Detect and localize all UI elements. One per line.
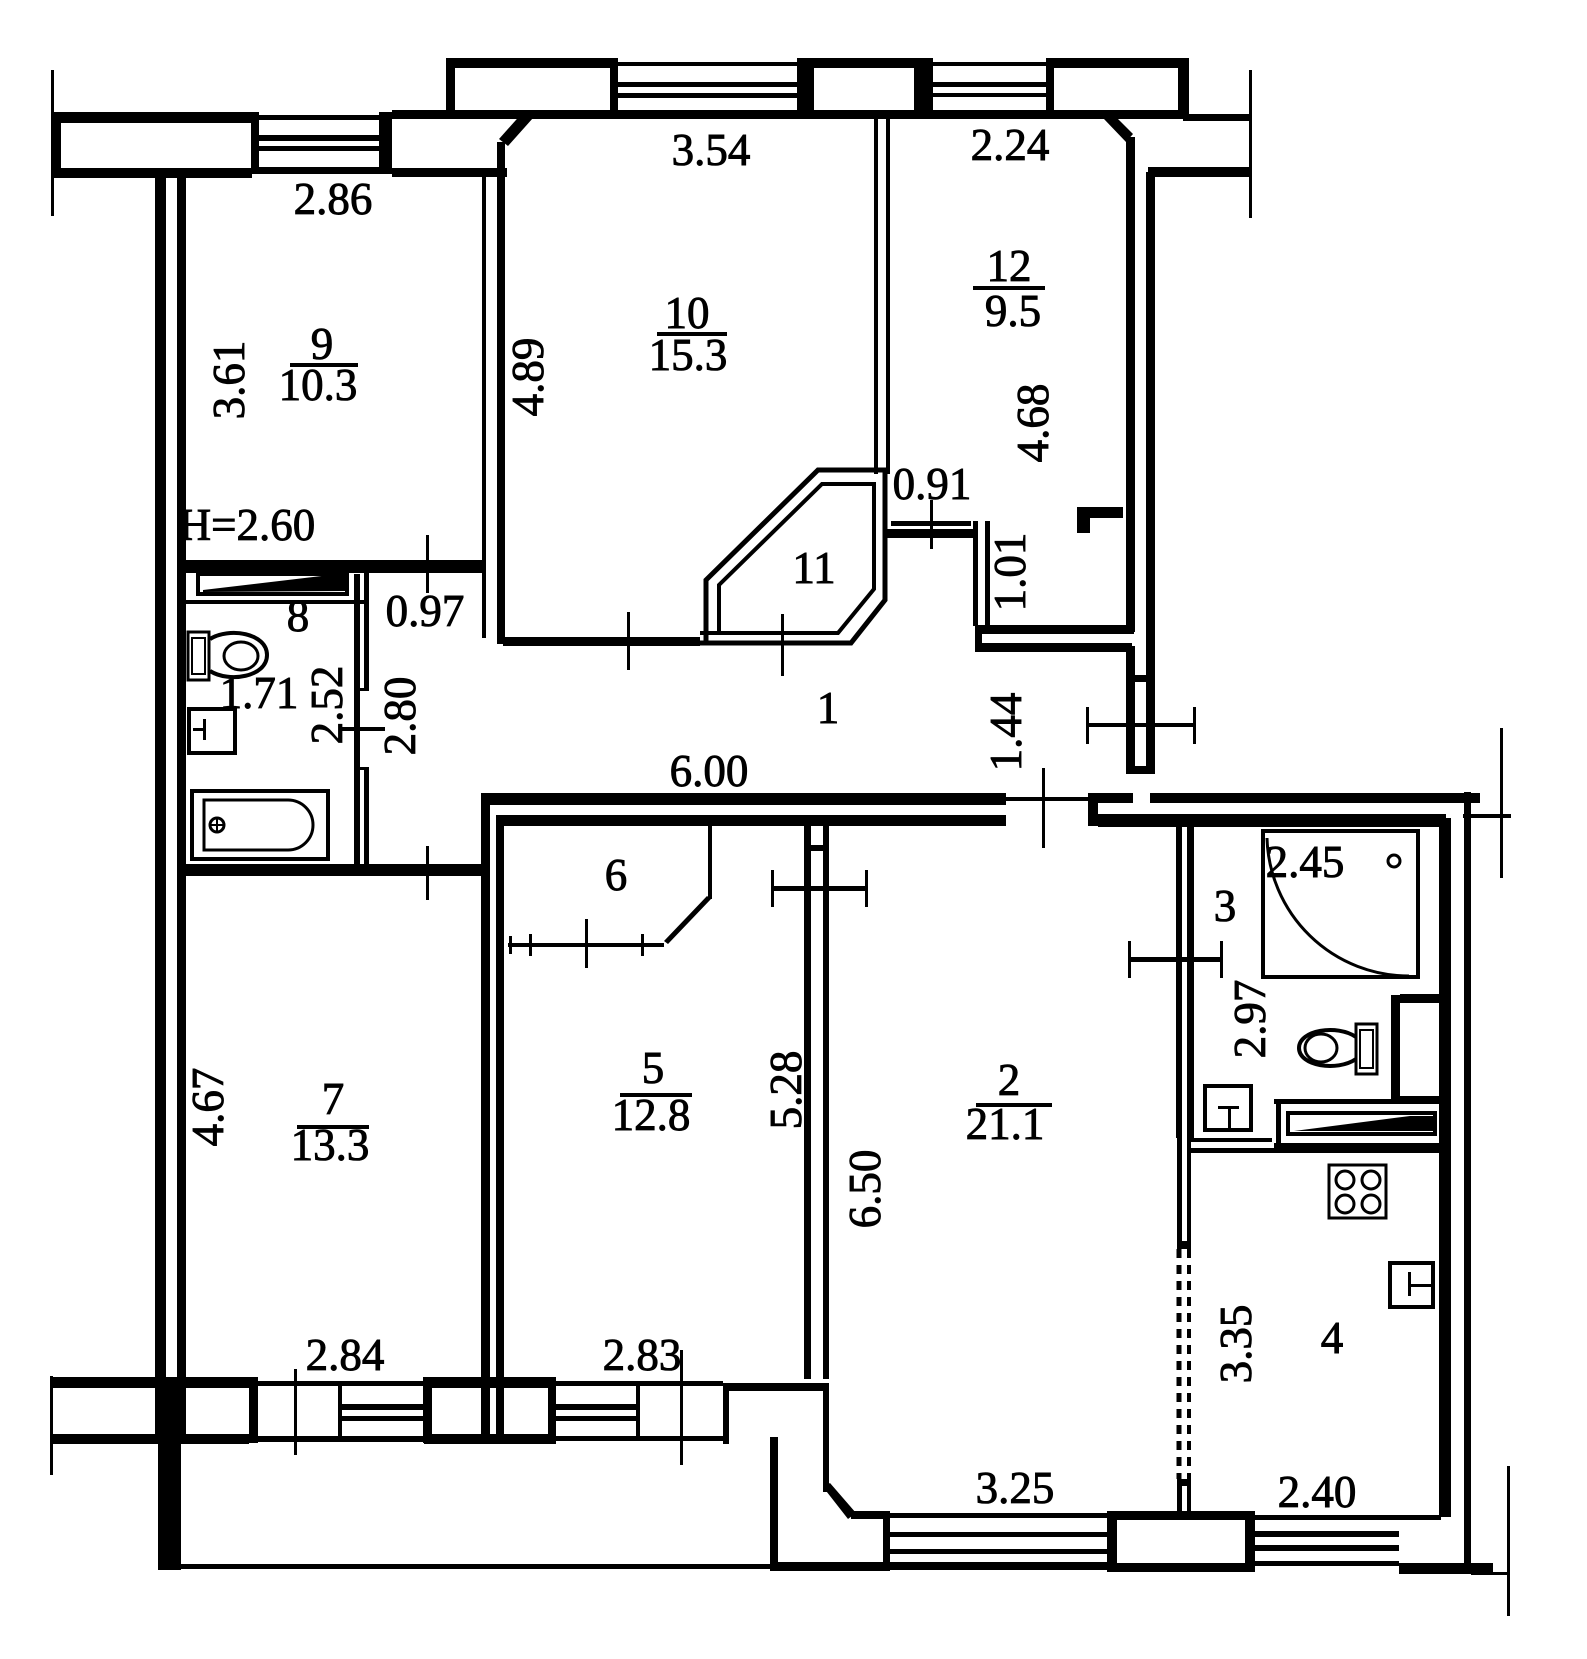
svg-text:3.25: 3.25 (976, 1463, 1055, 1513)
svg-text:4.68: 4.68 (1008, 384, 1058, 463)
svg-text:2.97: 2.97 (1225, 980, 1275, 1059)
svg-text:4.89: 4.89 (503, 338, 553, 417)
svg-text:15.3: 15.3 (649, 330, 728, 380)
svg-text:2.86: 2.86 (294, 174, 373, 224)
svg-text:2.45: 2.45 (1266, 837, 1345, 887)
svg-text:2.24: 2.24 (971, 120, 1050, 170)
svg-text:3.35: 3.35 (1211, 1305, 1261, 1384)
svg-text:11: 11 (792, 543, 835, 593)
svg-text:2.80: 2.80 (375, 677, 425, 756)
svg-text:4: 4 (1321, 1313, 1344, 1363)
svg-text:6.50: 6.50 (840, 1150, 890, 1229)
svg-text:0.91: 0.91 (893, 459, 972, 509)
svg-text:7: 7 (322, 1074, 345, 1124)
svg-text:3.54: 3.54 (672, 125, 751, 175)
svg-text:H=2.60: H=2.60 (179, 500, 316, 550)
svg-text:4.67: 4.67 (183, 1068, 233, 1147)
svg-text:6.00: 6.00 (670, 746, 749, 796)
svg-text:2.83: 2.83 (603, 1330, 682, 1380)
svg-text:1.71: 1.71 (220, 668, 299, 718)
svg-text:5.28: 5.28 (761, 1051, 811, 1130)
svg-text:2.40: 2.40 (1278, 1467, 1357, 1517)
svg-text:3.61: 3.61 (204, 341, 254, 420)
svg-text:1.01: 1.01 (985, 533, 1035, 612)
svg-text:3: 3 (1214, 881, 1237, 931)
svg-text:21.1: 21.1 (966, 1099, 1045, 1149)
svg-text:1.44: 1.44 (981, 693, 1031, 772)
svg-text:8: 8 (287, 591, 310, 641)
svg-text:1: 1 (817, 683, 840, 733)
svg-text:2.52: 2.52 (302, 666, 352, 745)
svg-text:9.5: 9.5 (985, 286, 1041, 336)
svg-text:12.8: 12.8 (612, 1090, 691, 1140)
svg-text:5: 5 (642, 1043, 665, 1093)
svg-text:6: 6 (605, 850, 628, 900)
svg-text:12: 12 (987, 241, 1032, 291)
svg-text:2: 2 (998, 1055, 1021, 1105)
svg-text:13.3: 13.3 (291, 1120, 370, 1170)
svg-text:10.3: 10.3 (279, 360, 358, 410)
svg-text:2.84: 2.84 (306, 1330, 385, 1380)
svg-text:0.97: 0.97 (386, 586, 465, 636)
